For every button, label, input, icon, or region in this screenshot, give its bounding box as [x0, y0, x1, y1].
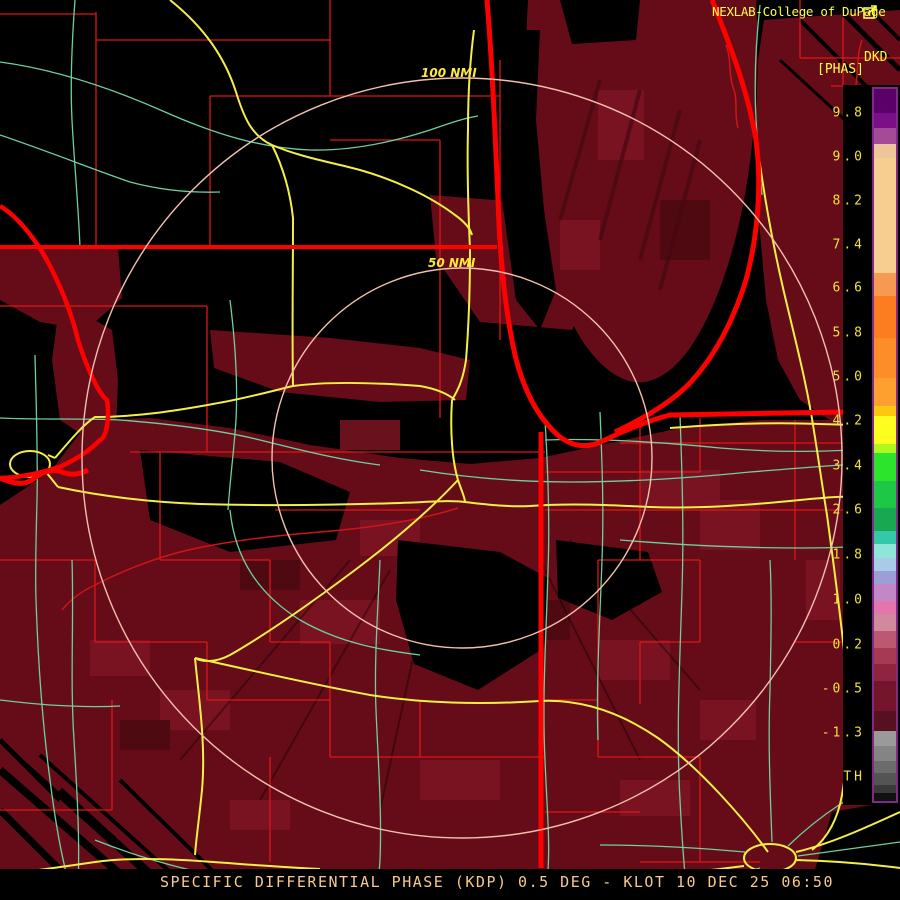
colorbar-tick: TH: [843, 770, 865, 785]
colorbar-tick: 0.2: [833, 638, 865, 653]
status-text: SPECIFIC DIFFERENTIAL PHASE (KDP) 0.5 DE…: [160, 873, 834, 891]
colorbar-tick: 1.8: [833, 548, 865, 563]
status-bar: SPECIFIC DIFFERENTIAL PHASE (KDP) 0.5 DE…: [0, 869, 900, 900]
colorbar-tick: 3.4: [833, 459, 865, 474]
colorbar-tick: 9.0: [833, 150, 865, 165]
colorbar-tick: 9.8: [833, 106, 865, 121]
radar-map[interactable]: [0, 0, 900, 900]
radar-screen: 9.89.08.27.46.65.85.04.23.42.61.81.00.2-…: [0, 0, 900, 900]
product-units-label: DKD: [864, 50, 887, 65]
range-ring-label-50: 50 NMI: [428, 256, 475, 270]
colorbar-panel: 9.89.08.27.46.65.85.04.23.42.61.81.00.2-…: [843, 85, 900, 805]
colorbar-tick: -0.5: [822, 682, 865, 697]
colorbar-tick: 2.6: [833, 503, 865, 518]
colorbar: [872, 87, 898, 803]
colorbar-tick: 4.2: [833, 414, 865, 429]
colorbar-tick: 1.0: [833, 593, 865, 608]
colorbar-tick: 6.6: [833, 281, 865, 296]
colorbar-tick: 7.4: [833, 238, 865, 253]
colorbar-tick: -1.3: [822, 726, 865, 741]
site-title: NEXLAB-College of DuPage: [712, 4, 885, 19]
colorbar-tick: 5.0: [833, 370, 865, 385]
range-ring-label-100: 100 NMI: [421, 66, 477, 80]
product-phase-label: [PHAS]: [817, 62, 864, 77]
colorbar-tick: 8.2: [833, 194, 865, 209]
colorbar-tick: 5.8: [833, 326, 865, 341]
cod-logo-icon: [862, 3, 879, 20]
